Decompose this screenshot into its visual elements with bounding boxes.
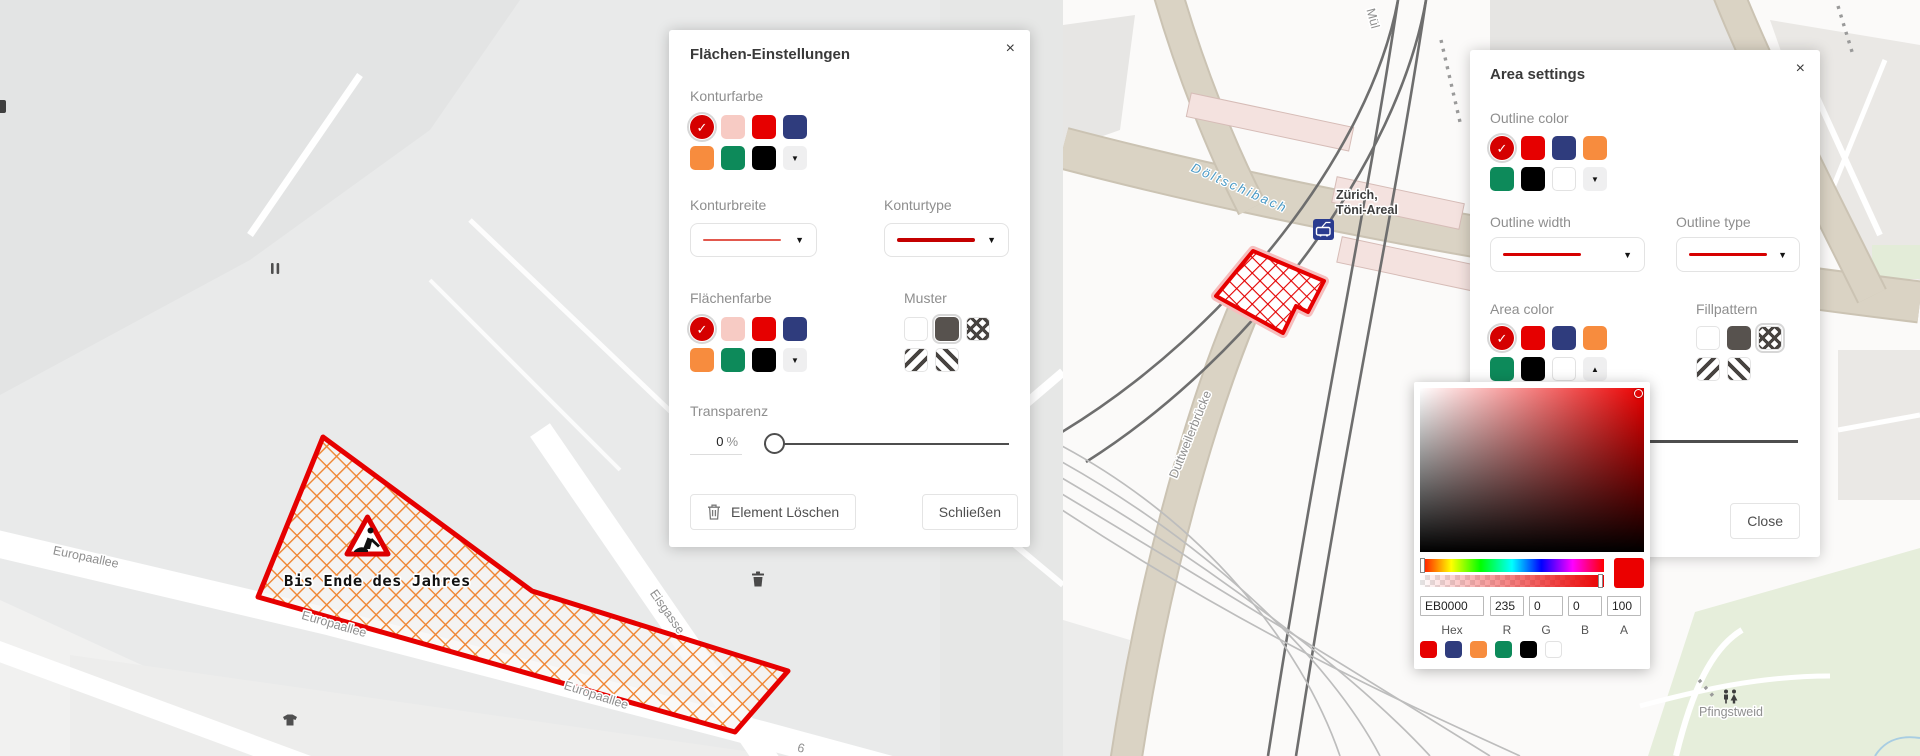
pattern-swatch-empty[interactable] [904, 317, 928, 341]
fillpattern-swatches [1696, 326, 1784, 381]
color-swatch[interactable] [1552, 326, 1576, 350]
pattern-swatch-solid[interactable] [935, 317, 959, 341]
chevron-down-icon: ▼ [1623, 250, 1632, 260]
color-swatch[interactable] [1521, 326, 1545, 350]
hue-slider[interactable] [1420, 559, 1604, 572]
pattern-swatch-cross[interactable] [1758, 326, 1782, 350]
color-swatch[interactable] [783, 115, 807, 139]
color-swatch[interactable] [1545, 641, 1562, 658]
color-swatch[interactable] [1520, 641, 1537, 658]
konturbreite-label: Konturbreite [690, 197, 884, 214]
pattern-swatch-diag-a[interactable] [904, 348, 928, 372]
slider-track[interactable] [764, 443, 1009, 445]
preset-color-swatches [1420, 641, 1562, 658]
transparenz-label: Transparenz [690, 403, 1009, 420]
saturation-value-gradient[interactable] [1420, 388, 1644, 552]
color-swatch[interactable] [1445, 641, 1462, 658]
slider-handle[interactable] [764, 433, 785, 454]
color-swatch[interactable] [752, 146, 776, 170]
konturbreite-dropdown[interactable]: ▼ [690, 223, 817, 257]
color-swatch[interactable]: ✓ [1490, 136, 1514, 160]
chevron-down-icon: ▼ [795, 235, 804, 245]
dialog-title: Area settings [1490, 66, 1800, 84]
muster-label: Muster [904, 290, 1009, 307]
line-width-preview [703, 239, 781, 241]
green-label: G [1541, 623, 1550, 637]
blue-label: B [1581, 623, 1589, 637]
transparency-unit: % [726, 434, 738, 449]
alpha-marker[interactable] [1598, 574, 1603, 588]
chevron-down-icon: ▼ [987, 235, 996, 245]
hue-marker[interactable] [1420, 558, 1425, 573]
pattern-swatch-diag-b[interactable] [1727, 357, 1751, 381]
park-label: Pfingstweid [1699, 705, 1763, 719]
area-annotation-label: Bis Ende des Jahres [284, 572, 471, 590]
chevron-down-icon: ▼ [1778, 250, 1787, 260]
close-icon[interactable]: × [1006, 41, 1015, 57]
color-swatch[interactable] [1521, 167, 1545, 191]
station-label-line1: Zürich, [1336, 188, 1378, 202]
konturtype-label: Konturtype [884, 197, 1009, 214]
red-label: R [1503, 623, 1512, 637]
flaechenfarbe-label: Flächenfarbe [690, 290, 904, 307]
dialog-title: Flächen-Einstellungen [690, 46, 1009, 64]
area-color-swatches: ✓▲ [1490, 326, 1608, 381]
muster-swatches [904, 317, 992, 372]
pattern-swatch-cross[interactable] [966, 317, 990, 341]
area-color-label: Area color [1490, 301, 1696, 318]
color-swatch[interactable]: ✓ [690, 115, 714, 139]
color-picker-popover: Hex R G B A [1414, 382, 1650, 669]
sv-marker[interactable] [1634, 389, 1643, 398]
outline-type-dropdown[interactable]: ▼ [1676, 237, 1800, 272]
color-swatch[interactable] [783, 317, 807, 341]
outline-color-label: Outline color [1490, 110, 1800, 127]
color-swatch[interactable] [1470, 641, 1487, 658]
tram-stop-icon [1313, 219, 1334, 240]
color-swatch[interactable] [1552, 167, 1576, 191]
hex-input[interactable] [1420, 596, 1484, 616]
konturtype-dropdown[interactable]: ▼ [884, 223, 1009, 257]
flaechenfarbe-swatches: ✓▼ [690, 317, 808, 372]
pattern-swatch-diag-b[interactable] [935, 348, 959, 372]
color-swatch[interactable] [1583, 326, 1607, 350]
color-swatch[interactable] [1495, 641, 1512, 658]
color-swatch[interactable] [690, 348, 714, 372]
trash-icon [707, 504, 721, 520]
close-button[interactable]: Close [1730, 503, 1800, 539]
alpha-slider[interactable] [1420, 575, 1604, 587]
outline-width-dropdown[interactable]: ▼ [1490, 237, 1645, 272]
transparency-value: 0 [716, 434, 723, 449]
outline-type-label: Outline type [1676, 214, 1800, 231]
delete-element-label: Element Löschen [731, 504, 839, 520]
color-swatch[interactable]: ✓ [690, 317, 714, 341]
selected-color-preview [1614, 558, 1644, 588]
alpha-label: A [1620, 623, 1628, 637]
transparency-input[interactable]: 0% [690, 434, 742, 455]
color-swatch[interactable] [1521, 136, 1545, 160]
pattern-swatch-solid[interactable] [1727, 326, 1751, 350]
color-swatch[interactable] [721, 348, 745, 372]
flaechen-einstellungen-dialog: Flächen-Einstellungen × Konturfarbe ✓▼ K… [669, 30, 1030, 547]
color-swatch[interactable] [752, 348, 776, 372]
color-swatch[interactable] [1420, 641, 1437, 658]
red-input[interactable] [1490, 596, 1524, 616]
line-width-preview [1503, 253, 1581, 256]
station-label-line2: Töni-Areal [1336, 203, 1398, 217]
color-swatch[interactable] [1490, 357, 1514, 381]
color-swatch[interactable]: ✓ [1490, 326, 1514, 350]
more-colors-dropdown[interactable]: ▼ [783, 348, 807, 372]
transparency-slider[interactable] [1650, 440, 1798, 443]
close-button[interactable]: Schließen [922, 494, 1018, 530]
konturfarbe-label: Konturfarbe [690, 88, 1009, 105]
alpha-input[interactable] [1607, 596, 1641, 616]
color-swatch[interactable] [721, 115, 745, 139]
outline-width-label: Outline width [1490, 214, 1676, 231]
more-colors-dropdown[interactable]: ▲ [1583, 357, 1607, 381]
close-icon[interactable]: × [1796, 61, 1805, 77]
color-swatch[interactable] [721, 317, 745, 341]
color-swatch[interactable] [1552, 357, 1576, 381]
color-swatch[interactable] [1583, 136, 1607, 160]
color-swatch[interactable] [721, 146, 745, 170]
color-swatch[interactable] [1490, 167, 1514, 191]
color-swatch[interactable] [752, 115, 776, 139]
more-colors-dropdown[interactable]: ▼ [783, 146, 807, 170]
screen: Bis Ende des Jahres Europaallee Europaal… [0, 0, 1920, 756]
green-input[interactable] [1529, 596, 1563, 616]
line-type-preview [897, 238, 975, 242]
pattern-swatch-empty[interactable] [1696, 326, 1720, 350]
delete-element-button[interactable]: Element Löschen [690, 494, 856, 530]
color-swatch[interactable] [752, 317, 776, 341]
line-type-preview [1689, 253, 1767, 256]
poi-icon [0, 100, 6, 113]
color-swatch[interactable] [690, 146, 714, 170]
color-swatch[interactable] [1552, 136, 1576, 160]
more-colors-dropdown[interactable]: ▼ [1583, 167, 1607, 191]
blue-input[interactable] [1568, 596, 1602, 616]
hex-label: Hex [1441, 623, 1462, 637]
color-swatch[interactable] [1521, 357, 1545, 381]
transparency-slider[interactable] [764, 433, 1009, 455]
outline-color-swatches: ✓▼ [1490, 136, 1608, 191]
konturfarbe-swatches: ✓▼ [690, 115, 808, 170]
fillpattern-label: Fillpattern [1696, 301, 1800, 318]
building-block [1490, 0, 1748, 55]
pattern-swatch-diag-a[interactable] [1696, 357, 1720, 381]
